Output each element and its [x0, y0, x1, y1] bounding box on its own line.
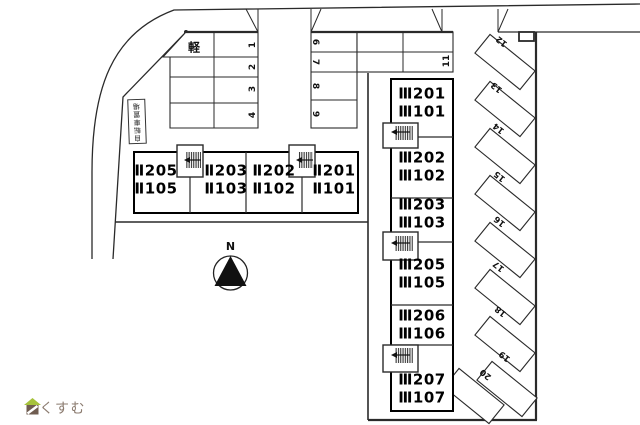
unit-iii-202: Ⅲ202Ⅲ102: [398, 149, 446, 186]
site-plan: Ⅱ205Ⅱ105 Ⅱ203Ⅱ103 Ⅱ202Ⅱ102 Ⅱ201Ⅱ101 Ⅲ201…: [0, 0, 640, 425]
stall-number-6: 6: [310, 39, 320, 45]
unit-iii-206: Ⅲ206Ⅲ106: [398, 307, 446, 344]
stall-number-2: 2: [248, 64, 258, 70]
stairs-icon: [383, 123, 418, 148]
bicycle-parking-label: 自転車置場: [133, 101, 141, 141]
diagonal-parking-spaces: [444, 34, 537, 423]
compass: N: [203, 236, 259, 294]
bicycle-parking-box: 自転車置場: [127, 99, 147, 145]
stairs-icon: [383, 345, 418, 372]
stall-number-1: 1: [248, 42, 258, 48]
unit-ii-202: Ⅱ202Ⅱ102: [252, 162, 295, 199]
kei-stall-label: 軽: [188, 39, 200, 56]
stall-number-7: 7: [310, 59, 320, 65]
utility-box: [519, 32, 534, 41]
driveway-flares: [246, 9, 508, 32]
compass-north-label: N: [226, 240, 235, 253]
stall-number-3: 3: [248, 86, 258, 92]
stairs-icon: [177, 145, 203, 177]
unit-ii-203: Ⅱ203Ⅱ103: [204, 162, 247, 199]
unit-iii-205: Ⅲ205Ⅲ105: [398, 256, 446, 293]
unit-ii-205: Ⅱ205Ⅱ105: [134, 162, 177, 199]
unit-iii-201: Ⅲ201Ⅲ101: [398, 85, 446, 122]
unit-iii-203: Ⅲ203Ⅲ103: [398, 196, 446, 233]
logo: らくすむ: [24, 398, 86, 418]
house-icon: [24, 398, 41, 415]
unit-ii-201: Ⅱ201Ⅱ101: [312, 162, 355, 199]
parking-block-c: [357, 32, 453, 72]
unit-iii-207: Ⅲ207Ⅲ107: [398, 371, 446, 408]
parking-block-a: [163, 32, 258, 128]
stall-number-9: 9: [310, 111, 320, 117]
site-plan-linework: [0, 0, 640, 425]
stall-number-4: 4: [248, 112, 258, 118]
stall-number-8: 8: [310, 83, 320, 89]
stall-number-11: 11: [442, 55, 452, 68]
